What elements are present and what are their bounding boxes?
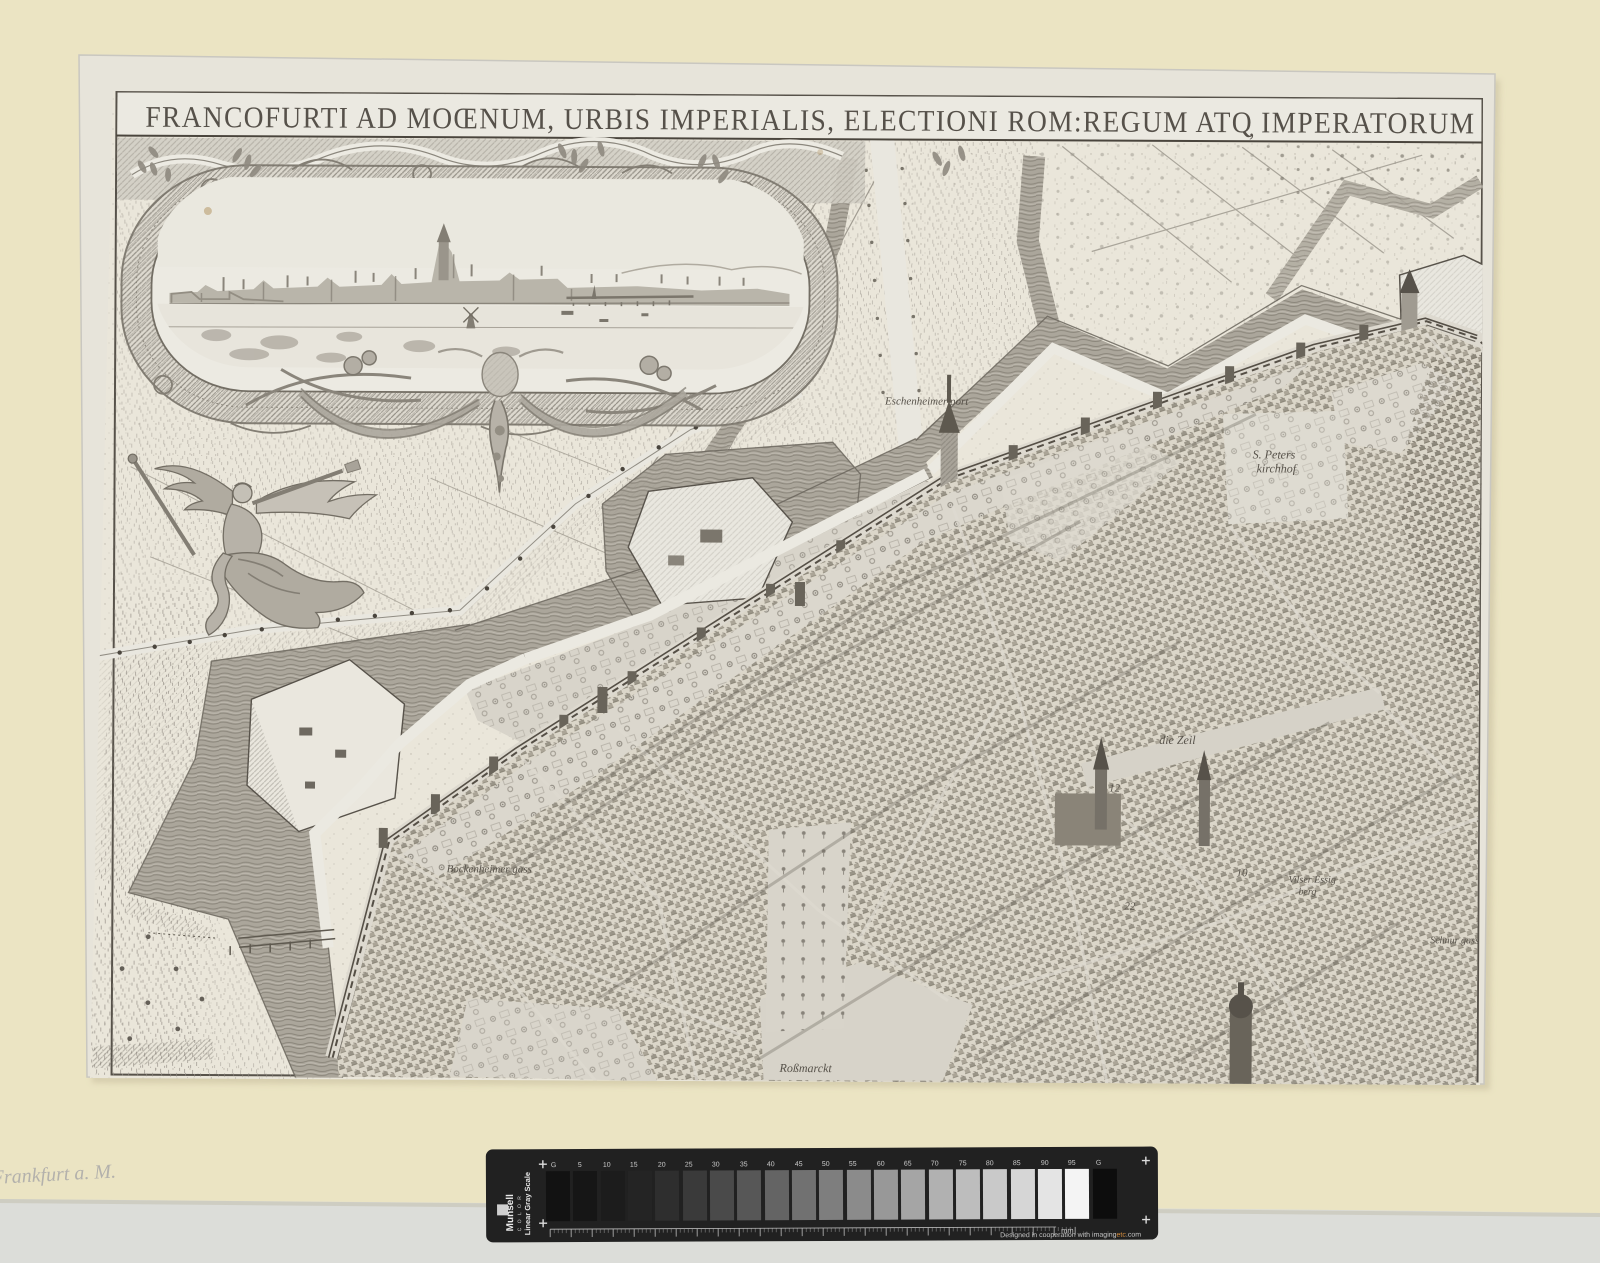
svg-text:Roßmarckt: Roßmarckt <box>779 1061 833 1075</box>
svg-text:80: 80 <box>986 1160 994 1167</box>
svg-text:55: 55 <box>849 1161 857 1168</box>
svg-text:65: 65 <box>904 1161 912 1168</box>
svg-text:25: 25 <box>685 1162 693 1169</box>
svg-text:G: G <box>551 1162 556 1169</box>
svg-text:12: 12 <box>1109 783 1121 795</box>
svg-text:60: 60 <box>877 1161 885 1168</box>
svg-text:50: 50 <box>822 1161 830 1168</box>
svg-text:90: 90 <box>1041 1160 1049 1167</box>
svg-text:die Zeil: die Zeil <box>1159 733 1196 747</box>
svg-text:30: 30 <box>712 1161 720 1168</box>
svg-text:Designed in cooperation with i: Designed in cooperation with imagingetc.… <box>1000 1232 1141 1240</box>
svg-text:S. Peters: S. Peters <box>1253 447 1296 461</box>
svg-text:22: 22 <box>1124 901 1136 913</box>
svg-text:5: 5 <box>578 1162 582 1169</box>
svg-text:G: G <box>1096 1160 1101 1167</box>
svg-text:berg: berg <box>1298 887 1316 898</box>
svg-text:Schnur gass: Schnur gass <box>1430 935 1479 946</box>
svg-text:45: 45 <box>795 1161 803 1168</box>
svg-text:95: 95 <box>1068 1160 1076 1167</box>
svg-text:75: 75 <box>959 1160 967 1167</box>
svg-text:15: 15 <box>630 1162 638 1169</box>
svg-text:40: 40 <box>767 1161 775 1168</box>
svg-text:Bockenheimer gass: Bockenheimer gass <box>447 863 532 875</box>
svg-text:20: 20 <box>658 1162 666 1169</box>
svg-text:10: 10 <box>603 1162 611 1169</box>
svg-text:Linear Gray Scale: Linear Gray Scale <box>523 1172 532 1235</box>
svg-text:10: 10 <box>1237 867 1249 879</box>
svg-text:70: 70 <box>931 1160 939 1167</box>
svg-text:kirchhof: kirchhof <box>1257 461 1298 475</box>
svg-text:Vilser Essig: Vilser Essig <box>1289 875 1336 886</box>
svg-text:Eschenheimer port: Eschenheimer port <box>884 395 969 407</box>
svg-text:85: 85 <box>1013 1160 1021 1167</box>
svg-text:Munsell: Munsell <box>505 1194 516 1231</box>
svg-text:35: 35 <box>740 1161 748 1168</box>
